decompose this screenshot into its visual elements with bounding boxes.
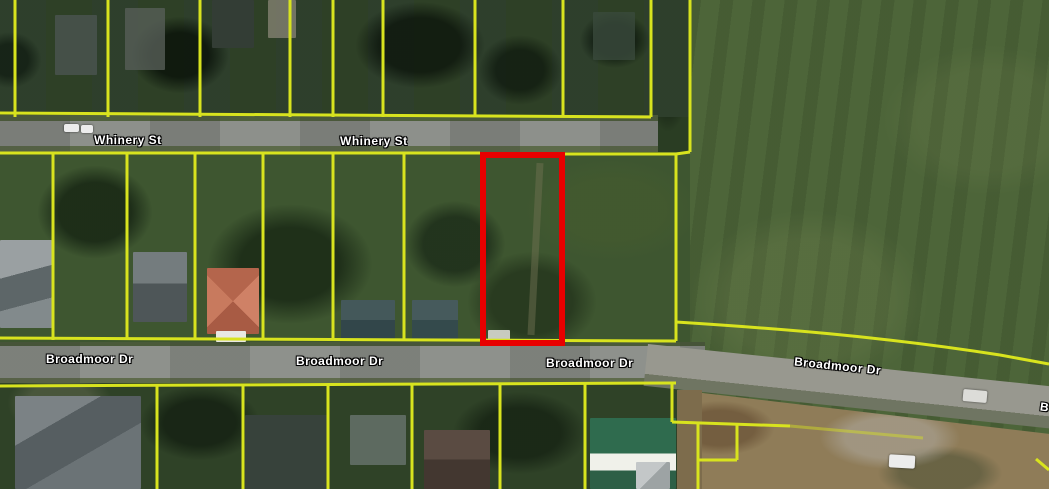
street-label-whinery-east: Whinery St bbox=[340, 134, 408, 148]
parcel-line bbox=[672, 422, 790, 426]
parcel-line bbox=[1036, 459, 1049, 470]
parcel-line bbox=[0, 338, 676, 341]
aerial-map-canvas[interactable]: Whinery St Whinery St Broadmoor Dr Broad… bbox=[0, 0, 1049, 489]
street-label-partial-edge: B bbox=[1039, 399, 1049, 414]
street-label-whinery-west: Whinery St bbox=[94, 133, 162, 147]
field-boundary-curve bbox=[676, 322, 1049, 364]
parcel-line bbox=[0, 113, 651, 117]
parcel-boundaries bbox=[0, 0, 1049, 489]
street-label-broadmoor-2: Broadmoor Dr bbox=[296, 354, 383, 368]
street-label-broadmoor-3: Broadmoor Dr bbox=[546, 356, 633, 370]
selected-parcel-outline[interactable] bbox=[483, 155, 562, 343]
parcel-line-faded bbox=[790, 426, 923, 438]
parcel-line bbox=[565, 152, 690, 154]
street-label-broadmoor-1: Broadmoor Dr bbox=[46, 352, 133, 366]
parcel-line bbox=[0, 383, 676, 386]
parcel-overlay bbox=[0, 0, 1049, 489]
